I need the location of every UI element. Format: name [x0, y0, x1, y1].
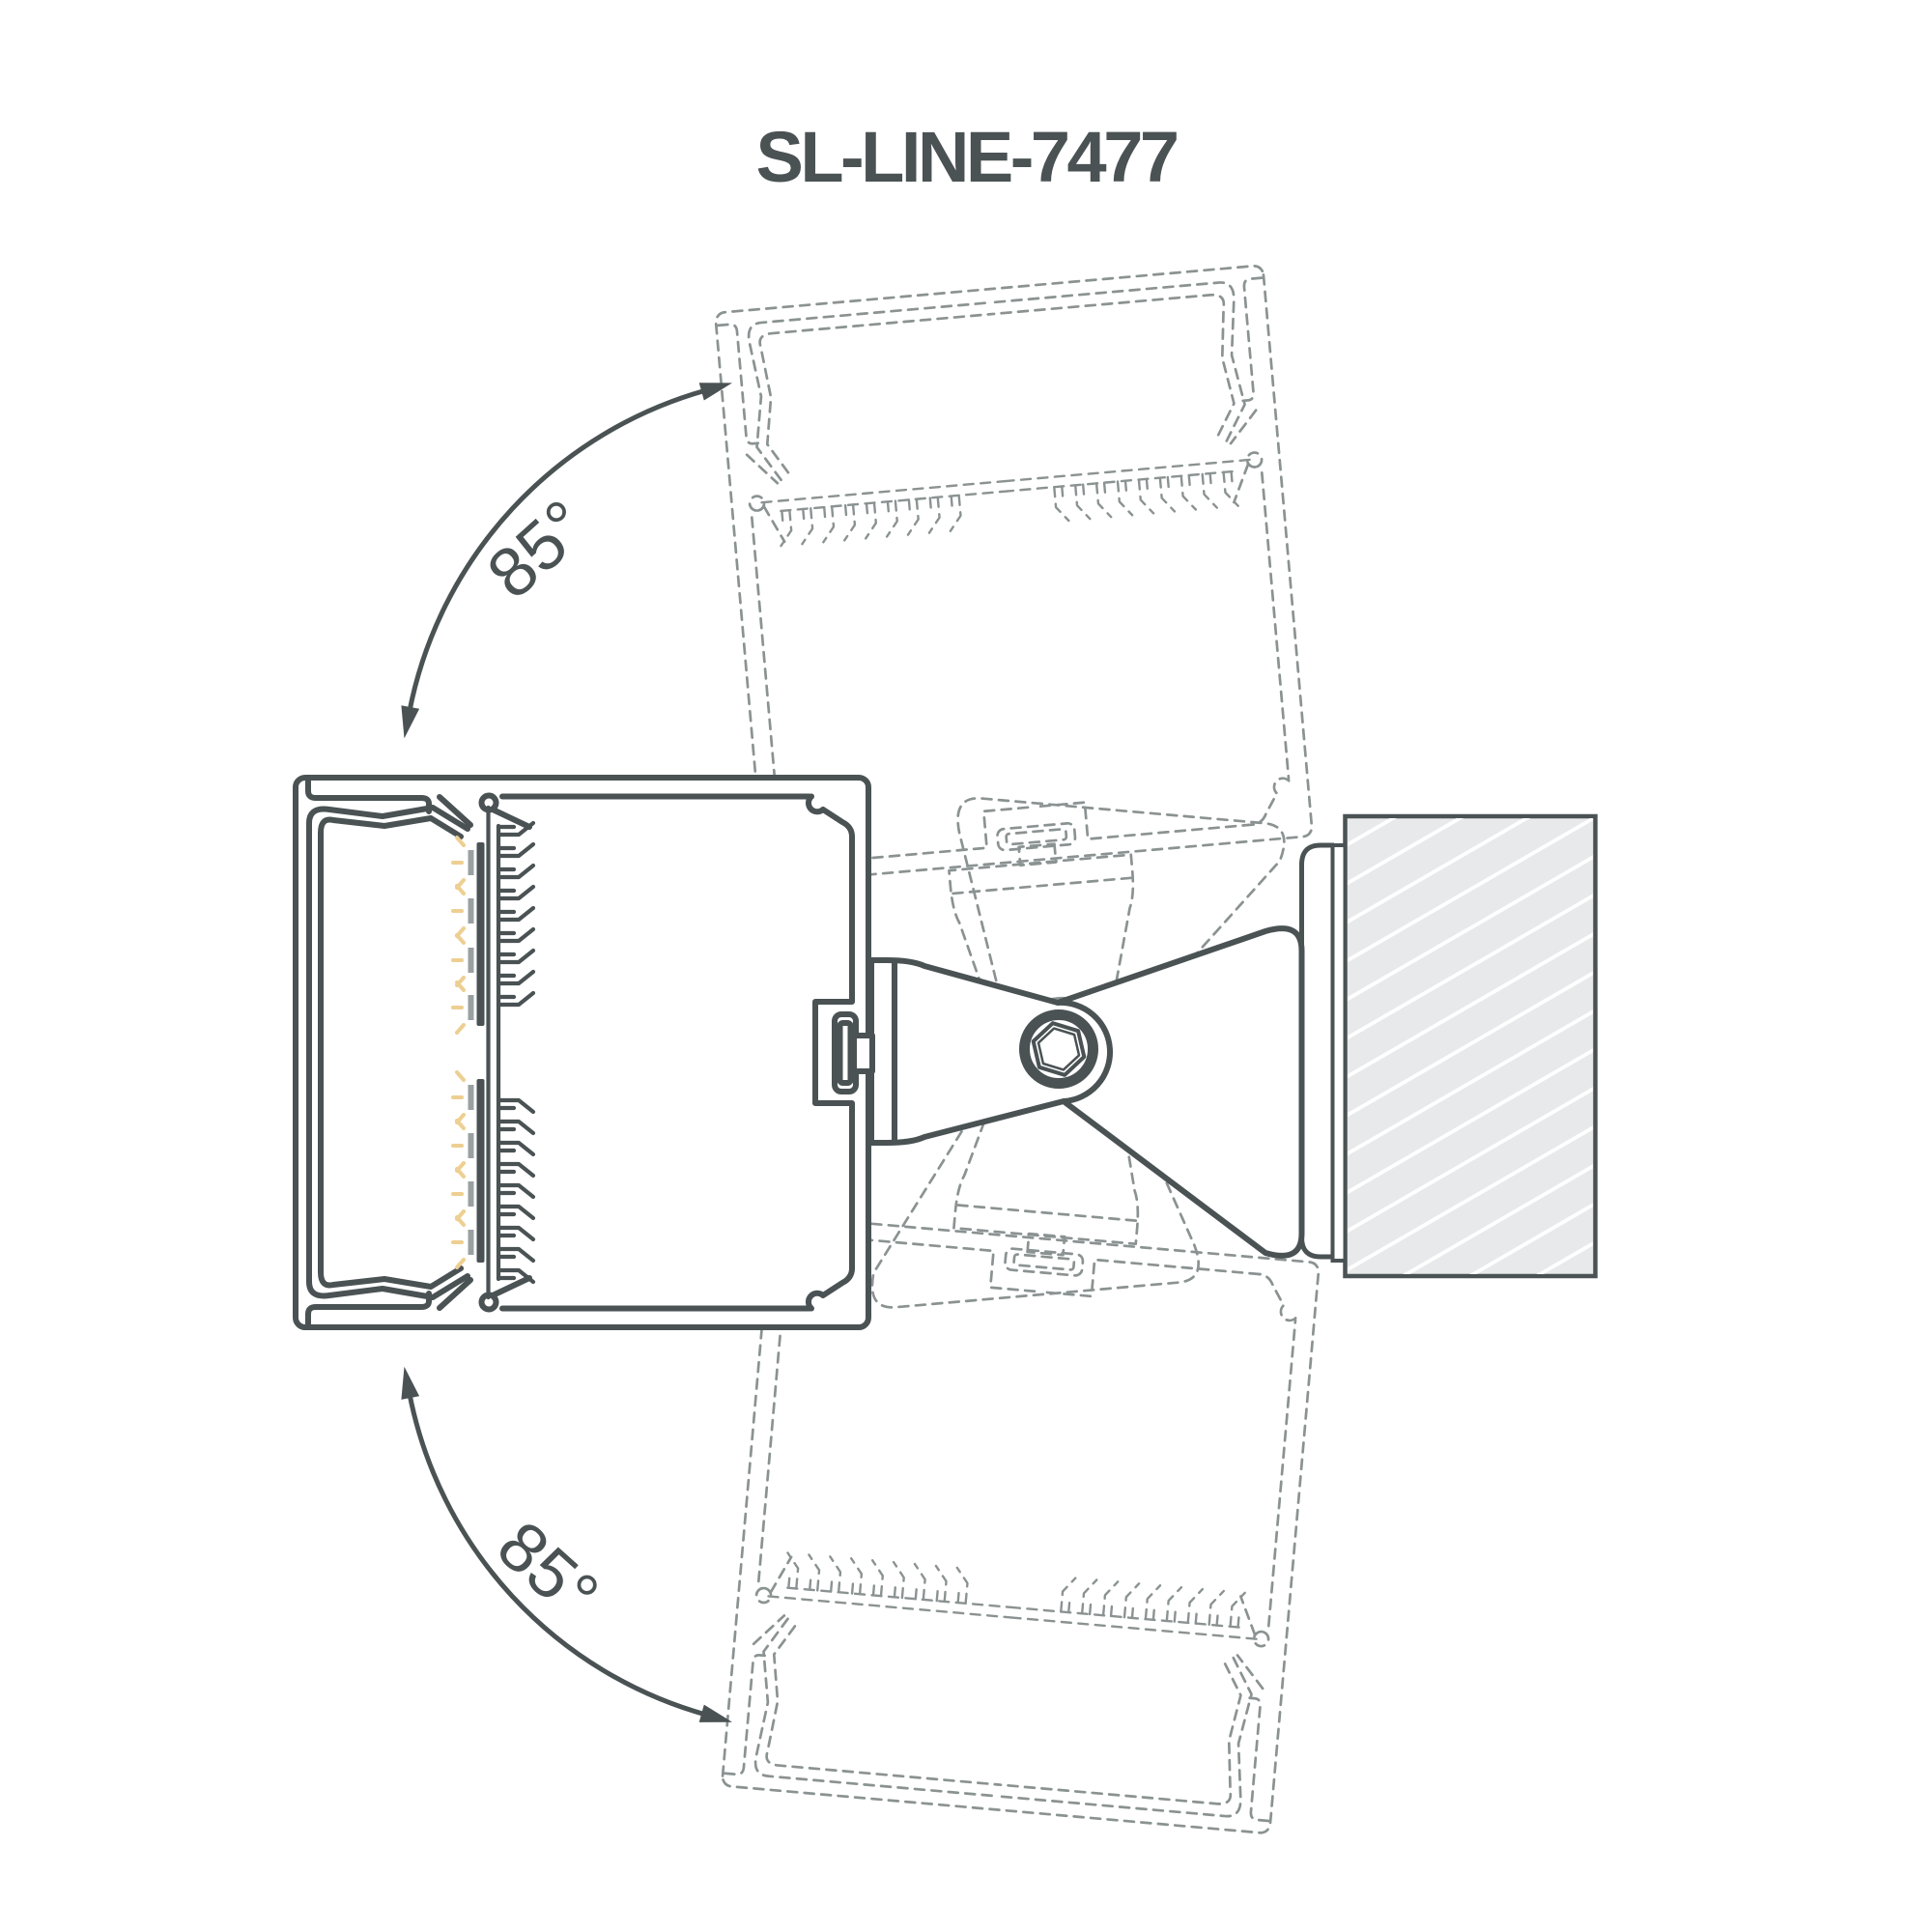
- svg-text:SL-LINE-7477: SL-LINE-7477: [755, 117, 1176, 197]
- svg-text:85°: 85°: [483, 1507, 612, 1634]
- svg-text:85°: 85°: [473, 486, 603, 613]
